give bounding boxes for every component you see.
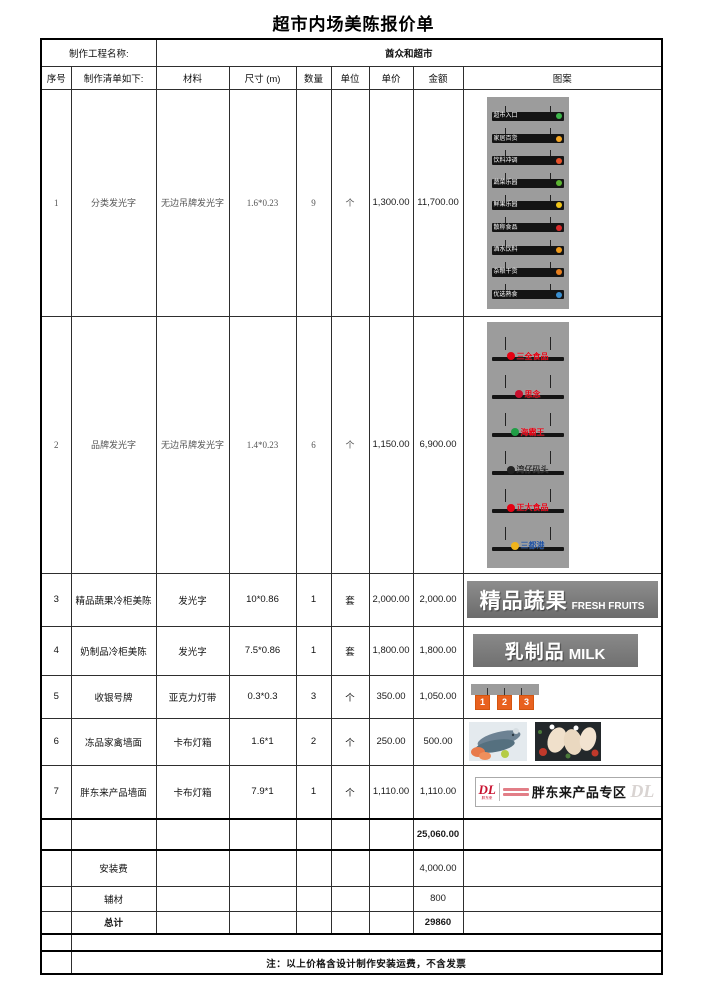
cell-material: 亚克力灯带	[156, 675, 229, 718]
col-header-item: 制作清单如下:	[71, 66, 156, 89]
total-amount: 29860	[413, 911, 463, 934]
subtotal-amount: 25,060.00	[413, 819, 463, 850]
category-sign-label: 鲜果乐园	[494, 202, 518, 208]
cashier-tag: 3	[519, 695, 534, 710]
category-sign: 杂粮干货	[490, 262, 566, 277]
category-sign: 酒水饮料	[490, 240, 566, 255]
brand-sign: 三都港	[489, 527, 567, 552]
cell-item: 冻品家禽墙面	[71, 718, 156, 765]
cell-item: 奶制品冷柜美陈	[71, 626, 156, 675]
col-header-qty: 数量	[296, 66, 331, 89]
note-text: 注：以上价格含设计制作安装运费，不含发票	[71, 951, 662, 974]
category-sign: 优选熟食	[490, 284, 566, 299]
hanger-lines	[505, 375, 551, 388]
category-dot-icon	[556, 113, 562, 119]
brand-logo-icon	[507, 352, 515, 360]
cell-unit: 个	[331, 316, 369, 573]
cell-size: 0.3*0.3	[229, 675, 296, 718]
produce-banner: 精品蔬果 FRESH FRUITS	[467, 581, 658, 618]
total-label: 总计	[71, 911, 156, 934]
table-row: 7 胖东来产品墙面 卡布灯箱 7.9*1 1 个 1,110.00 1,110.…	[41, 765, 662, 819]
cell-unit: 个	[331, 675, 369, 718]
brand-logo-icon	[507, 504, 515, 512]
cell-price: 250.00	[369, 718, 413, 765]
table-row: 5 收银号牌 亚克力灯带 0.3*0.3 3 个 350.00 1,050.00…	[41, 675, 662, 718]
brand-sign: 三全食品	[489, 337, 567, 362]
category-sign: 散称食品	[490, 217, 566, 232]
hanger-lines	[505, 337, 551, 350]
brand-sign: 正大食品	[489, 489, 567, 514]
col-header-size: 尺寸 (m)	[229, 66, 296, 89]
spacer-row	[41, 934, 662, 951]
cell-item: 胖东来产品墙面	[71, 765, 156, 819]
cell-qty: 1	[296, 765, 331, 819]
table-row: 2 品牌发光字 无边吊牌发光字 1.4*0.23 6 个 1,150.00 6,…	[41, 316, 662, 573]
cell-image: 精品蔬果 FRESH FRUITS	[463, 573, 662, 626]
dl-banner: DL 胖东来 胖东来产品专区 DL	[475, 777, 663, 807]
cell-size: 7.5*0.86	[229, 626, 296, 675]
divider	[499, 783, 500, 801]
hanger-lines	[505, 527, 551, 540]
brand-sign-label: 三都港	[521, 541, 545, 550]
hanger-lines	[505, 262, 551, 268]
cell-amount: 1,110.00	[413, 765, 463, 819]
table-header-row: 序号 制作清单如下: 材料 尺寸 (m) 数量 单位 单价 金额 图案	[41, 66, 662, 89]
project-name-label: 制作工程名称:	[41, 39, 156, 66]
hanger-rail	[471, 684, 539, 695]
cell-qty: 1	[296, 573, 331, 626]
brand-sign: 思念	[489, 375, 567, 400]
hanger-lines	[505, 173, 551, 179]
brand-sign-label: 三全食品	[517, 352, 549, 361]
hanger-lines	[505, 240, 551, 246]
milk-banner-cn: 乳制品	[505, 637, 565, 664]
cell-unit: 个	[331, 89, 369, 316]
cell-amount: 1,050.00	[413, 675, 463, 718]
install-fee-amount: 4,000.00	[413, 850, 463, 886]
project-name-value: 酋众和超市	[156, 39, 662, 66]
category-dot-icon	[556, 247, 562, 253]
cell-item: 收银号牌	[71, 675, 156, 718]
hanger-lines	[505, 413, 551, 426]
col-header-image: 图案	[463, 66, 662, 89]
brand-sign: 湾仔码头	[489, 451, 567, 476]
brand-sign-label: 思念	[525, 390, 541, 399]
note-row: 注：以上价格含设计制作安装运费，不含发票	[41, 951, 662, 974]
table-row: 6 冻品家禽墙面 卡布灯箱 1.6*1 2 个 250.00 500.00	[41, 718, 662, 765]
hanger-lines	[505, 489, 551, 502]
dl-logo-sub: 胖东来	[482, 796, 493, 800]
category-sign: 鲜果乐园	[490, 195, 566, 210]
cell-unit: 套	[331, 573, 369, 626]
table-row: 1 分类发光字 无边吊牌发光字 1.6*0.23 9 个 1,300.00 11…	[41, 89, 662, 316]
milk-banner-en: MILK	[569, 646, 606, 663]
dl-watermark: DL	[630, 781, 654, 802]
category-sign-label: 蔬菜乐园	[494, 180, 518, 186]
category-dot-icon	[556, 136, 562, 142]
cell-amount: 6,900.00	[413, 316, 463, 573]
category-sign-label: 杂粮干货	[494, 269, 518, 275]
cell-no: 3	[41, 573, 71, 626]
cell-size: 1.4*0.23	[229, 316, 296, 573]
cell-size: 10*0.86	[229, 573, 296, 626]
table-row: 3 精品蔬果冷柜美陈 发光字 10*0.86 1 套 2,000.00 2,00…	[41, 573, 662, 626]
cell-image: 乳制品 MILK	[463, 626, 662, 675]
brand-sign-label: 正大食品	[517, 503, 549, 512]
cell-price: 350.00	[369, 675, 413, 718]
project-name-row: 制作工程名称: 酋众和超市	[41, 39, 662, 66]
cell-qty: 1	[296, 626, 331, 675]
category-sign: 蔬菜乐园	[490, 173, 566, 188]
poultry-photo	[535, 722, 601, 761]
cell-amount: 11,700.00	[413, 89, 463, 316]
category-signs-panel: 超市入口 家居百货 饮料冲调 蔬菜乐园 鲜果乐园 散称食品 酒水饮料 杂粮干货 …	[487, 97, 569, 309]
col-header-amount: 金额	[413, 66, 463, 89]
cell-image	[463, 718, 662, 765]
category-dot-icon	[556, 269, 562, 275]
cell-qty: 3	[296, 675, 331, 718]
cell-material: 发光字	[156, 573, 229, 626]
cashier-tag: 1	[475, 695, 490, 710]
page-title: 超市内场美陈报价单	[0, 10, 707, 35]
cashier-number-tags: 1 2 3	[470, 684, 540, 710]
brand-logo-icon	[507, 466, 515, 474]
cell-image: 1 2 3	[463, 675, 662, 718]
cell-item: 分类发光字	[71, 89, 156, 316]
category-dot-icon	[556, 180, 562, 186]
cell-amount: 1,800.00	[413, 626, 463, 675]
cell-item: 精品蔬果冷柜美陈	[71, 573, 156, 626]
aux-material-label: 辅材	[71, 886, 156, 911]
dl-logo: DL	[479, 783, 496, 796]
install-fee-label: 安装费	[71, 850, 156, 886]
cell-price: 1,300.00	[369, 89, 413, 316]
brand-sign-label: 湾仔码头	[517, 465, 549, 474]
col-header-unit: 单位	[331, 66, 369, 89]
category-sign-label: 饮料冲调	[494, 158, 518, 164]
category-dot-icon	[556, 292, 562, 298]
cell-qty: 9	[296, 89, 331, 316]
cell-qty: 2	[296, 718, 331, 765]
quotation-table: 制作工程名称: 酋众和超市 序号 制作清单如下: 材料 尺寸 (m) 数量 单位…	[40, 38, 663, 975]
cell-image: 超市入口 家居百货 饮料冲调 蔬菜乐园 鲜果乐园 散称食品 酒水饮料 杂粮干货 …	[463, 89, 662, 316]
cell-no: 1	[41, 89, 71, 316]
aux-material-amount: 800	[413, 886, 463, 911]
brand-logo-icon	[511, 542, 519, 550]
cell-amount: 2,000.00	[413, 573, 463, 626]
hanger-lines	[505, 106, 551, 112]
category-sign-label: 优选熟食	[494, 292, 518, 298]
cell-unit: 套	[331, 626, 369, 675]
category-dot-icon	[556, 225, 562, 231]
cell-unit: 个	[331, 765, 369, 819]
micro-text-lines	[503, 788, 529, 796]
install-fee-row: 安装费 4,000.00	[41, 850, 662, 886]
cell-amount: 500.00	[413, 718, 463, 765]
cell-material: 发光字	[156, 626, 229, 675]
category-sign-label: 家居百货	[494, 136, 518, 142]
col-header-no: 序号	[41, 66, 71, 89]
cell-material: 无边吊牌发光字	[156, 316, 229, 573]
cell-price: 1,150.00	[369, 316, 413, 573]
aux-material-row: 辅材 800	[41, 886, 662, 911]
cell-material: 卡布灯箱	[156, 718, 229, 765]
cell-image: 三全食品 思念 海霸王 湾仔码头 正大食品 三都港	[463, 316, 662, 573]
total-row: 总计 29860	[41, 911, 662, 934]
cell-price: 2,000.00	[369, 573, 413, 626]
produce-banner-cn: 精品蔬果	[480, 585, 568, 615]
cell-size: 1.6*0.23	[229, 89, 296, 316]
hanger-lines	[505, 451, 551, 464]
brand-logo-icon	[511, 428, 519, 436]
cell-item: 品牌发光字	[71, 316, 156, 573]
table-row: 4 奶制品冷柜美陈 发光字 7.5*0.86 1 套 1,800.00 1,80…	[41, 626, 662, 675]
cell-price: 1,110.00	[369, 765, 413, 819]
category-sign: 家居百货	[490, 128, 566, 143]
col-header-material: 材料	[156, 66, 229, 89]
cell-image: DL 胖东来 胖东来产品专区 DL	[463, 765, 662, 819]
produce-banner-en: FRESH FRUITS	[572, 601, 645, 612]
category-sign: 超市入口	[490, 106, 566, 121]
cell-no: 6	[41, 718, 71, 765]
cell-size: 1.6*1	[229, 718, 296, 765]
milk-banner: 乳制品 MILK	[473, 634, 638, 667]
brand-logo-icon	[515, 390, 523, 398]
cell-material: 无边吊牌发光字	[156, 89, 229, 316]
fish-photo	[469, 722, 527, 761]
category-sign-label: 酒水饮料	[494, 247, 518, 253]
cell-unit: 个	[331, 718, 369, 765]
cell-no: 4	[41, 626, 71, 675]
cell-qty: 6	[296, 316, 331, 573]
cell-price: 1,800.00	[369, 626, 413, 675]
cell-no: 5	[41, 675, 71, 718]
category-sign-label: 超市入口	[494, 113, 518, 119]
category-sign-label: 散称食品	[494, 225, 518, 231]
cell-no: 7	[41, 765, 71, 819]
brand-signs-panel: 三全食品 思念 海霸王 湾仔码头 正大食品 三都港	[487, 322, 569, 568]
col-header-price: 单价	[369, 66, 413, 89]
dl-banner-title: 胖东来产品专区	[532, 782, 627, 801]
cell-no: 2	[41, 316, 71, 573]
brand-sign: 海霸王	[489, 413, 567, 438]
cell-material: 卡布灯箱	[156, 765, 229, 819]
category-sign: 饮料冲调	[490, 150, 566, 165]
cell-size: 7.9*1	[229, 765, 296, 819]
category-dot-icon	[556, 202, 562, 208]
cashier-tag: 2	[497, 695, 512, 710]
category-dot-icon	[556, 158, 562, 164]
subtotal-row: 25,060.00	[41, 819, 662, 850]
brand-sign-label: 海霸王	[521, 428, 545, 437]
